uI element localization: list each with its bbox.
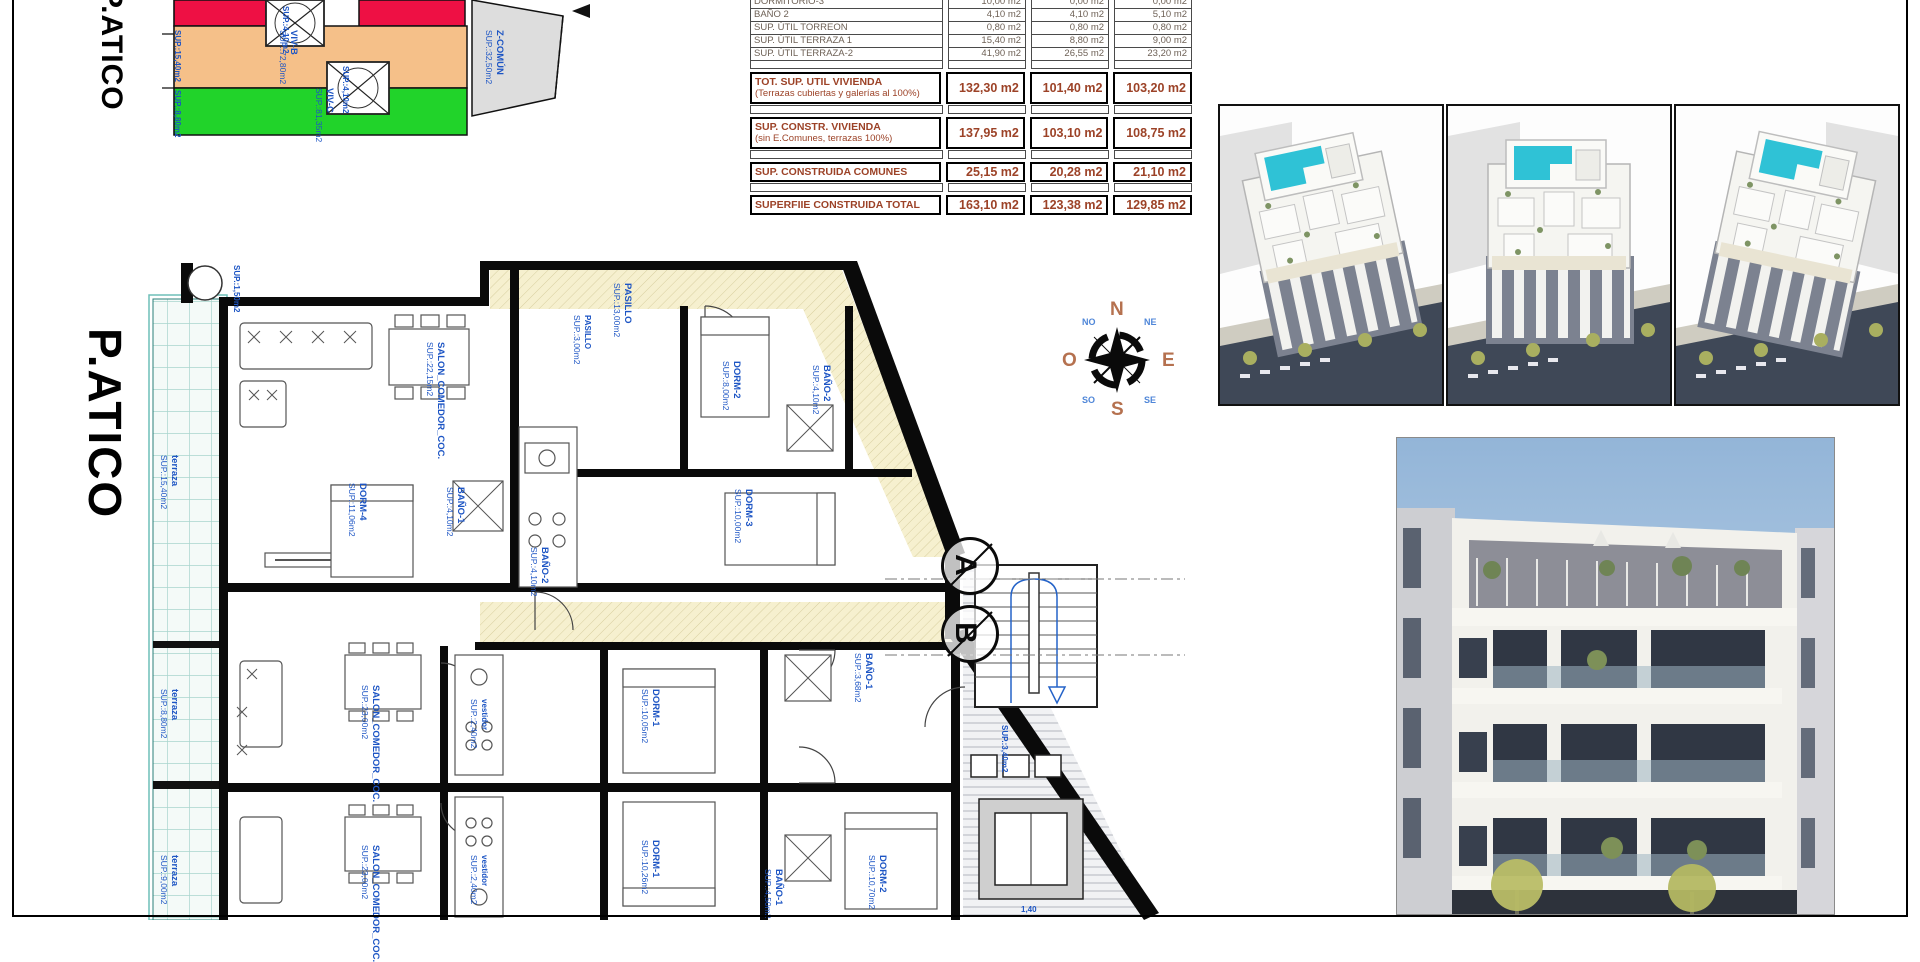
table-row: SUP. CONSTRUIDA COMUNES25,15 m220,28 m22… — [750, 162, 1192, 182]
plan-sheet: { "sheet": { "floor_title": "P.ATICO", "… — [0, 0, 1920, 920]
room-label: BAÑO-1SUP.:4,10m2 — [445, 487, 465, 536]
aerial-render-2 — [1446, 104, 1672, 406]
compass-east: E — [1162, 350, 1175, 372]
table-row: SUP. ÚTIL TERRAZA-241,90 m226,55 m223,20… — [750, 47, 1192, 61]
room-label: SUP.:8,80m2 — [172, 90, 182, 137]
facade-render — [1396, 437, 1835, 915]
room-label: vestidorSUP.:2,40m2 — [469, 699, 489, 748]
room-label: terrazaSUP.:9,00m2 — [159, 855, 179, 904]
room-label: DORM-2SUP.:8,00m2 — [721, 361, 741, 410]
room-label: SUP.:3,40m2 — [999, 725, 1009, 772]
aerial-render-3 — [1674, 104, 1900, 406]
table-spacer-row — [750, 60, 1192, 69]
room-label: vestidorSUP.:2,40m2 — [469, 855, 489, 904]
room-label: 1,40 — [1021, 905, 1037, 915]
table-row: SUP. ÚTIL TORREON0,80 m20,80 m20,80 m2 — [750, 21, 1192, 35]
compass-se: SE — [1144, 395, 1156, 405]
room-label: PASILLOSUP.:13,00m2 — [612, 283, 632, 337]
room-label: BAÑO-2SUP.:4,10m2 — [529, 547, 549, 596]
section-marker-a: A — [941, 537, 999, 595]
room-label: terrazaSUP.:8,80m2 — [159, 689, 179, 738]
floor-title: P.ATICO — [78, 328, 132, 519]
table-row: SUPERFIIE CONSTRUIDA TOTAL163,10 m2123,3… — [750, 195, 1192, 215]
room-label: PASILLOSUP.:3,00m2 — [572, 315, 592, 364]
room-label: DORM-4SUP.:11,06m2 — [347, 483, 367, 537]
table-row: SUP. CONSTR. VIVIENDA(sin E.Comunes, ter… — [750, 117, 1192, 149]
table-row: TOT. SUP. UTIL VIVIENDA(Terrazas cubiert… — [750, 72, 1192, 104]
compass-ne: NE — [1144, 317, 1157, 327]
room-label: SUP.:1,50m2 — [231, 265, 241, 312]
room-label: DORM-2SUP.:10,70m2 — [867, 855, 887, 909]
room-label: DORM-1SUP.:10,26m2 — [640, 840, 660, 894]
section-marker-b: B — [941, 605, 999, 663]
room-label: BAÑO-2SUP.:4,10m2 — [811, 365, 831, 414]
room-label: terrazaSUP.:15,40m2 — [159, 455, 179, 509]
room-label: SALON_COMEDOR_COC.SUP.:23,00m2 — [360, 845, 380, 962]
table-row: BAÑO 24,10 m24,10 m25,10 m2 — [750, 8, 1192, 22]
table-spacer-row — [750, 105, 1192, 114]
room-label: BAÑO-1SUP.:4,50m2 — [763, 869, 783, 918]
table-row: SUP. ÚTIL TERRAZA 115,40 m28,80 m29,00 m… — [750, 34, 1192, 48]
floor-plan: SALON_COMEDOR_COC.SUP.:22,15m2PASILLOSUP… — [145, 257, 1185, 920]
compass-nw: NO — [1082, 317, 1096, 327]
compass-sw: SO — [1082, 395, 1095, 405]
aerial-render-1 — [1218, 104, 1444, 406]
room-label: SUP.:4,10m2 — [340, 66, 350, 113]
room-label: Z-COMÚNSUP.:32,50m2 — [484, 30, 504, 84]
room-label: DORM-1SUP.:10,05m2 — [640, 689, 660, 743]
room-label: SUP.:4,10m2 — [280, 6, 290, 53]
room-label: SUP.:15,40m2 — [172, 30, 182, 82]
site-zoning-plan: VIV-BSUP.:72,80m2VIV-CSUP.:81,35m2Z-COMÚ… — [122, 0, 592, 145]
table-spacer-row — [750, 150, 1192, 159]
room-label: DORM-3SUP.:10,00m2 — [733, 489, 753, 543]
compass-west: O — [1062, 350, 1077, 372]
room-label: SALON_COMEDOR_COC.SUP.:23,00m2 — [360, 685, 380, 802]
surface-area-table: DORMITORIO-310,00 m20,00 m20,00 m2BAÑO 2… — [750, 0, 1192, 217]
compass-rose: N S E O NO NE SO SE — [1060, 303, 1175, 418]
site-zoning-drawing — [122, 0, 592, 145]
north-arrow-icon — [572, 4, 590, 18]
room-label: BAÑO-1SUP.:3,68m2 — [853, 653, 873, 702]
table-spacer-row — [750, 183, 1192, 192]
room-label: SALON_COMEDOR_COC.SUP.:22,15m2 — [425, 342, 445, 459]
floor-plan-drawing — [145, 257, 1185, 920]
compass-south: S — [1111, 399, 1124, 421]
compass-north: N — [1110, 299, 1124, 321]
room-label: VIV-CSUP.:81,35m2 — [314, 88, 334, 142]
